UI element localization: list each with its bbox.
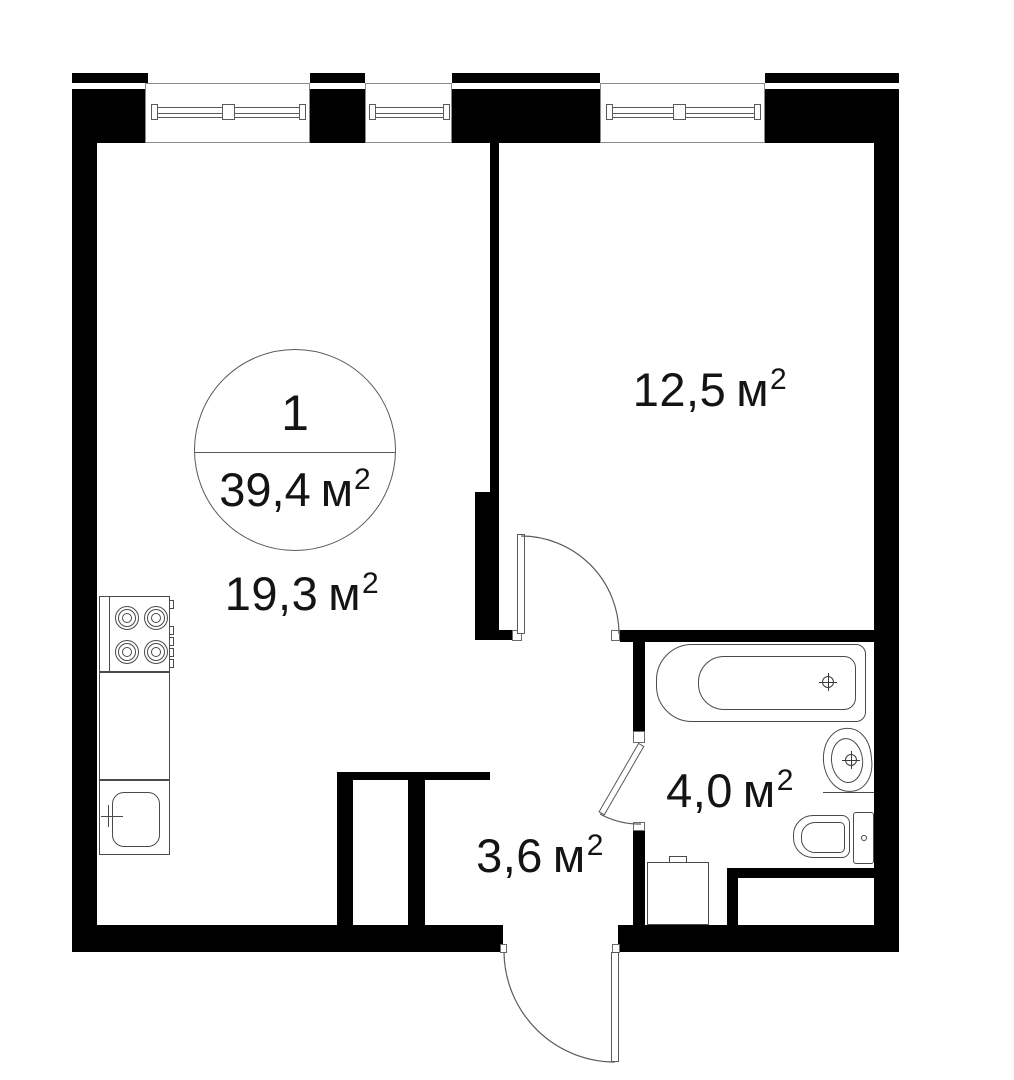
window-1-cap-right	[299, 104, 306, 120]
unit-total-area: 39,4м2	[195, 462, 395, 517]
wall-niche-top	[727, 868, 899, 878]
bedroom-door-leaf	[517, 534, 525, 634]
unit-number: 1	[195, 384, 395, 442]
floor-plan: 1 39,4м2 19,3м2 12,5м2 4,0м2 3,6м2	[0, 0, 1014, 1080]
wall-bottom-right	[618, 925, 899, 952]
wall-right	[874, 73, 899, 952]
toilet-icon	[793, 815, 850, 858]
wall-bedroom-bathroom	[620, 630, 874, 642]
bedroom-door-jamb-right	[611, 630, 620, 641]
bathtub-icon	[656, 644, 866, 722]
room-label-hall: 3,6м2	[476, 828, 604, 883]
kitchen-sink-unit	[99, 780, 170, 855]
entrance-door-arc	[504, 952, 615, 1062]
window-3-cap-left	[606, 104, 613, 120]
unit-badge: 1 39,4м2	[194, 349, 396, 551]
bathtub-drain-icon	[822, 676, 834, 688]
entrance-door-jamb-left	[500, 944, 507, 953]
wall-living-bedroom-thick	[475, 492, 499, 640]
wall-bathroom-lower	[633, 831, 645, 925]
window-bay-3	[600, 83, 765, 143]
window-2-cap-right	[443, 104, 450, 120]
window-1-mullion	[222, 104, 235, 120]
room-label-bedroom: 12,5м2	[633, 362, 787, 417]
washbasin-faucet-icon	[845, 754, 857, 766]
wall-closet-right	[408, 780, 425, 925]
burner-icon	[115, 606, 139, 630]
burner-icon	[144, 640, 168, 664]
stove-icon	[99, 596, 170, 672]
unit-badge-divider	[195, 452, 395, 453]
room-label-living: 19,3м2	[225, 566, 379, 621]
bedroom-door-arc	[521, 536, 619, 634]
burner-icon	[144, 606, 168, 630]
wall-niche-left	[727, 878, 738, 925]
window-2-cap-left	[369, 104, 376, 120]
washing-machine-icon	[647, 862, 709, 925]
washing-machine-notch	[669, 856, 687, 863]
window-1-cap-left	[151, 104, 158, 120]
burner-icon	[115, 640, 139, 664]
kitchen-sink-basin	[112, 792, 160, 847]
wall-bathroom-upper	[633, 642, 645, 731]
bathroom-door-jamb-bottom	[633, 822, 645, 831]
stove-panel-line	[109, 597, 110, 671]
window-2-frame	[372, 107, 447, 118]
kitchen-faucet-icon	[101, 816, 123, 817]
entrance-door-leaf	[611, 952, 619, 1062]
wall-closet-left	[337, 780, 353, 925]
toilet-tank	[853, 812, 874, 864]
toilet-button-icon	[861, 835, 867, 841]
wall-bottom-left	[72, 925, 503, 952]
wall-closet-bar	[337, 772, 490, 780]
wall-living-bedroom-thin	[490, 143, 499, 492]
window-3-cap-right	[754, 104, 761, 120]
window-3-mullion	[673, 104, 686, 120]
washbasin-shelf-line	[823, 792, 874, 793]
wall-left	[72, 143, 97, 952]
door-swing-arcs	[0, 0, 1014, 1080]
bathroom-door-jamb-top	[633, 731, 645, 743]
kitchen-counter	[99, 672, 170, 780]
window-bay-1	[145, 83, 310, 143]
window-bay-2	[365, 83, 452, 143]
room-label-bathroom: 4,0м2	[666, 763, 794, 818]
bathroom-door-leaf	[598, 743, 644, 816]
toilet-bowl-inner	[801, 822, 845, 853]
